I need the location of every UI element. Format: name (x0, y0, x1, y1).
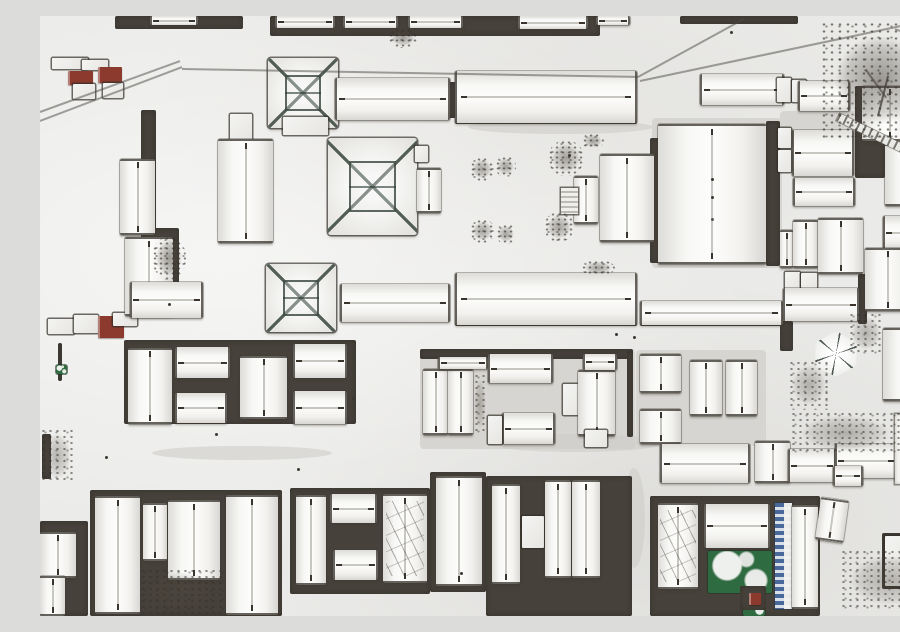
house-roof (572, 480, 600, 578)
square-hall-roof (328, 138, 417, 235)
gallery-roof (340, 284, 450, 322)
snow-speck (730, 31, 733, 34)
east-hall-roof (883, 216, 900, 249)
gallery-roof (455, 71, 637, 123)
house-roof (833, 466, 863, 486)
house-roof (502, 413, 555, 444)
garden-bushes (790, 411, 900, 455)
house-roof (438, 357, 488, 369)
west-hall-roof (120, 159, 155, 235)
garden-bushes (788, 360, 830, 410)
east-hall-roof (818, 218, 863, 274)
snow-speck (105, 456, 108, 459)
footprint-track (152, 446, 332, 460)
house-roof (545, 480, 571, 578)
aerial-photo (40, 16, 900, 616)
house-roof (640, 354, 681, 393)
courtyard-tree (470, 157, 494, 181)
garden-bushes (848, 312, 884, 354)
house-roof (755, 441, 790, 483)
flag-pole (58, 343, 62, 381)
side-room-roof (415, 146, 428, 162)
house-roof (815, 497, 849, 542)
house-roof (95, 496, 140, 614)
east-hall-roof (793, 178, 855, 206)
gallery-roof (455, 273, 637, 325)
snow-speck (568, 154, 571, 157)
house-roof (333, 550, 378, 580)
house-roof (423, 369, 448, 435)
east-hall-roof (885, 144, 900, 206)
cut-roof (518, 16, 588, 29)
house-roof (293, 344, 347, 378)
cut-roof (596, 16, 630, 25)
snow-speck (633, 336, 636, 339)
east-hall-roof (780, 230, 793, 268)
house-roof (704, 504, 770, 548)
side-room-roof (488, 416, 502, 444)
courtyard-tree (496, 224, 516, 244)
green-kiosk (56, 365, 67, 374)
house-roof (448, 369, 473, 435)
house-roof (175, 347, 230, 378)
house-roof (240, 356, 287, 419)
snow-speck (168, 303, 171, 306)
annex-roof (417, 168, 441, 213)
bare-tree (820, 21, 900, 139)
house-roof (436, 476, 482, 586)
gallery-roof (640, 301, 783, 325)
courtyard-tree (470, 219, 495, 243)
main-hall-roof (658, 124, 766, 264)
shrub (152, 236, 186, 280)
red-shed (749, 593, 761, 605)
side-room-roof (778, 128, 791, 148)
house-roof (726, 360, 757, 416)
side-room-roof (230, 114, 252, 140)
cut-roof (408, 16, 463, 28)
side-room-roof (522, 516, 544, 548)
house-roof (40, 576, 65, 616)
snow-speck (297, 468, 300, 471)
east-hall-roof (883, 328, 900, 401)
house-roof (660, 444, 750, 483)
east-hall-roof (865, 248, 900, 311)
house-roof (492, 484, 520, 584)
cut-roof (343, 16, 398, 28)
house-roof (690, 360, 722, 416)
cut-roof (275, 16, 335, 28)
house-roof (383, 494, 427, 583)
stone-steps (561, 188, 578, 214)
garden-bushes (473, 373, 487, 435)
wall-shadow (627, 351, 633, 437)
north-hall-roof (700, 74, 784, 105)
side-room-roof (585, 430, 607, 447)
house-roof (293, 391, 347, 424)
gate-apron (283, 117, 328, 135)
east-hall-roof (793, 220, 818, 268)
house-roof (658, 503, 698, 589)
snow-speck (215, 433, 218, 436)
house-roof (488, 354, 553, 383)
house-roof (143, 503, 167, 561)
house-roof (640, 409, 681, 444)
house-roof (583, 354, 617, 370)
house-roof (128, 348, 172, 424)
snow-speck (352, 397, 355, 400)
snow-speck (460, 572, 463, 575)
snow-speck (615, 333, 618, 336)
gate-tower-roof (266, 264, 336, 332)
red-gate-roof (48, 319, 74, 334)
gallery-roof (130, 282, 203, 318)
house-roof (578, 370, 615, 436)
shrub (581, 260, 615, 276)
side-room-roof (785, 272, 800, 288)
gallery-roof (335, 78, 450, 120)
blue-striped-roof (775, 503, 792, 609)
courtyard-tree (548, 140, 584, 176)
red-gate-roof (74, 315, 98, 333)
west-hall-roof (218, 139, 273, 243)
side-room-roof (801, 273, 817, 288)
house-roof (792, 505, 818, 609)
house-roof (40, 532, 76, 578)
cut-roof (150, 16, 198, 25)
courtyard-clutter (140, 568, 224, 614)
courtyard-tree (495, 156, 516, 177)
house-roof (226, 495, 278, 615)
side-room-roof (777, 78, 791, 102)
side-room-roof (778, 150, 791, 172)
wall-shadow (780, 321, 793, 351)
twigs (40, 428, 74, 484)
house-roof (175, 393, 227, 423)
shrub (388, 28, 418, 48)
debris-pile (840, 549, 900, 611)
shrub (582, 133, 604, 149)
red-gate (68, 71, 93, 85)
front-hall-roof (600, 154, 654, 242)
house-roof (330, 494, 377, 523)
house-roof (296, 495, 326, 585)
red-gate (98, 67, 122, 83)
courtyard-tree (544, 212, 574, 242)
